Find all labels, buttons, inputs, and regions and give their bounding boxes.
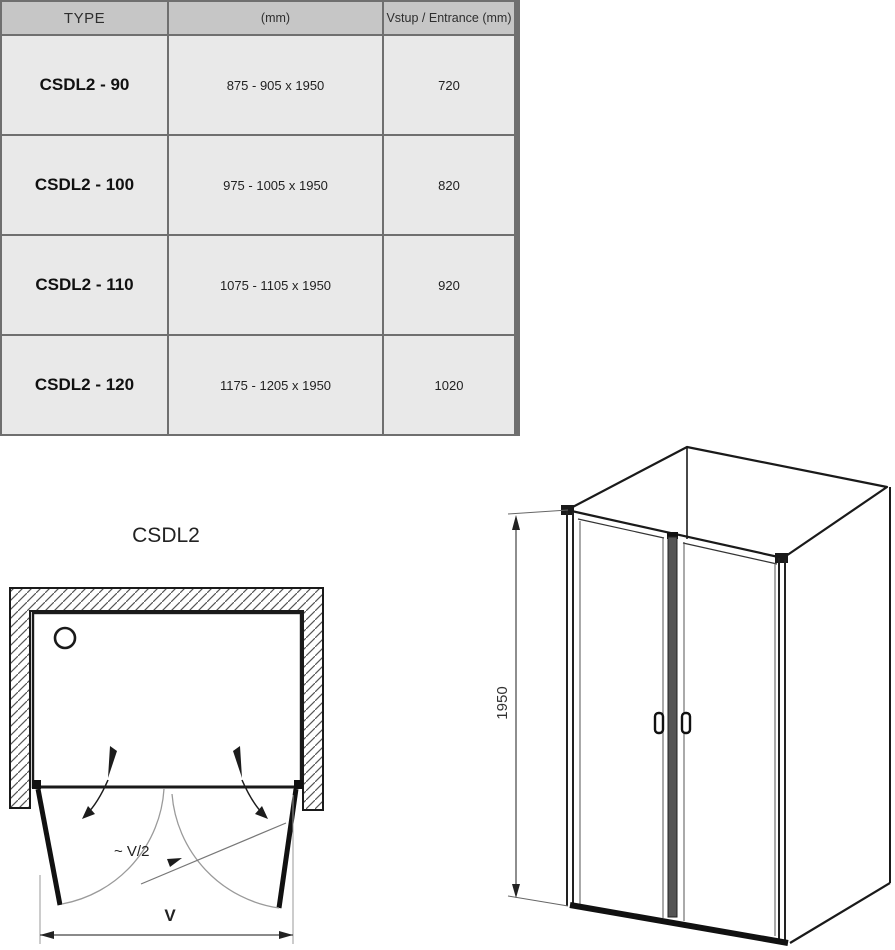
col-header-type: TYPE	[2, 2, 167, 34]
row-size: 975 - 1005 x 1950	[169, 136, 382, 234]
row-type: CSDL2 - 90	[2, 36, 167, 134]
height-label: 1950	[494, 674, 512, 732]
shower-tray-outline	[33, 613, 301, 787]
row-size: 875 - 905 x 1950	[169, 36, 382, 134]
half-width-label: ~ V/2	[114, 843, 149, 860]
spec-table: TYPE (mm) Vstup / Entrance (mm) CSDL2 - …	[0, 0, 520, 436]
door-swing-arcs	[62, 789, 279, 908]
row-type: CSDL2 - 110	[2, 236, 167, 334]
col-header-size: (mm)	[169, 2, 382, 34]
height-dimension	[508, 510, 568, 906]
row-type: CSDL2 - 100	[2, 136, 167, 234]
width-label: V	[157, 906, 183, 926]
col-header-entrance: Vstup / Entrance (mm)	[384, 2, 514, 34]
row-entrance: 820	[384, 136, 514, 234]
right-wall-profile	[775, 553, 788, 943]
top-view-drawing	[0, 575, 340, 950]
enclosure-top-frame	[567, 447, 887, 558]
row-size: 1175 - 1205 x 1950	[169, 336, 382, 434]
row-size: 1075 - 1105 x 1950	[169, 236, 382, 334]
left-wall-profile	[561, 505, 574, 906]
front-view-drawing	[490, 435, 895, 950]
center-post	[667, 532, 678, 917]
side-panel-edges	[790, 487, 890, 943]
diagram-title: CSDL2	[118, 524, 214, 548]
row-type: CSDL2 - 120	[2, 336, 167, 434]
half-width-leader	[141, 823, 286, 884]
row-entrance: 1020	[384, 336, 514, 434]
catalog-sheet: TYPE (mm) Vstup / Entrance (mm) CSDL2 - …	[0, 0, 895, 950]
row-entrance: 920	[384, 236, 514, 334]
row-entrance: 720	[384, 36, 514, 134]
threshold-sill	[570, 905, 788, 943]
